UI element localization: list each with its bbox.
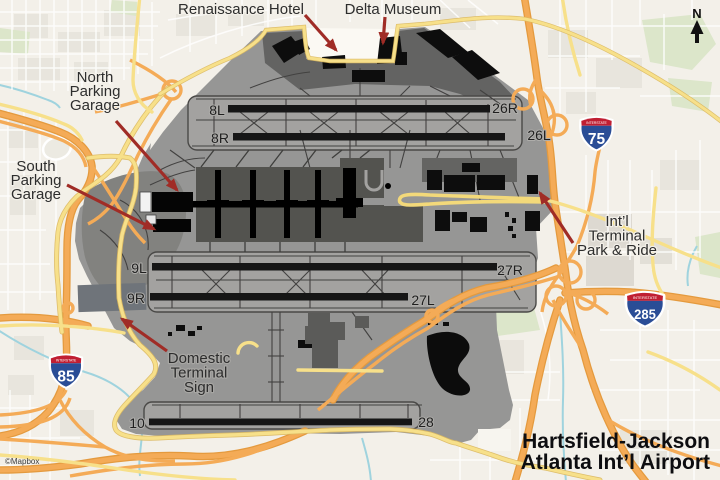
svg-text:85: 85: [57, 369, 75, 386]
svg-text:Park & Ride: Park & Ride: [577, 242, 657, 259]
svg-text:9L: 9L: [131, 260, 147, 276]
svg-text:27L: 27L: [411, 292, 435, 308]
svg-text:Garage: Garage: [11, 186, 61, 203]
svg-text:Delta Museum: Delta Museum: [345, 1, 442, 18]
svg-text:©Mapbox: ©Mapbox: [5, 457, 39, 466]
svg-text:Hartsfield-Jackson: Hartsfield-Jackson: [522, 430, 710, 453]
svg-text:8R: 8R: [211, 130, 229, 146]
svg-text:INTERSTATE: INTERSTATE: [586, 121, 607, 125]
svg-text:8L: 8L: [209, 102, 225, 118]
svg-text:9R: 9R: [127, 290, 145, 306]
svg-text:26L: 26L: [527, 127, 551, 143]
svg-text:28: 28: [418, 414, 434, 430]
svg-text:10: 10: [129, 415, 145, 431]
svg-text:INTERSTATE: INTERSTATE: [633, 296, 658, 300]
svg-text:27R: 27R: [497, 262, 523, 278]
svg-text:INTERSTATE: INTERSTATE: [56, 358, 77, 362]
svg-text:Garage: Garage: [70, 97, 120, 114]
svg-text:Renaissance Hotel: Renaissance Hotel: [178, 1, 304, 18]
svg-text:75: 75: [588, 131, 606, 148]
svg-text:285: 285: [634, 307, 656, 322]
svg-text:N: N: [692, 6, 701, 21]
svg-text:Sign: Sign: [184, 379, 214, 396]
svg-text:26R: 26R: [492, 100, 518, 116]
svg-text:Atlanta Int’l Airport: Atlanta Int’l Airport: [521, 451, 710, 474]
